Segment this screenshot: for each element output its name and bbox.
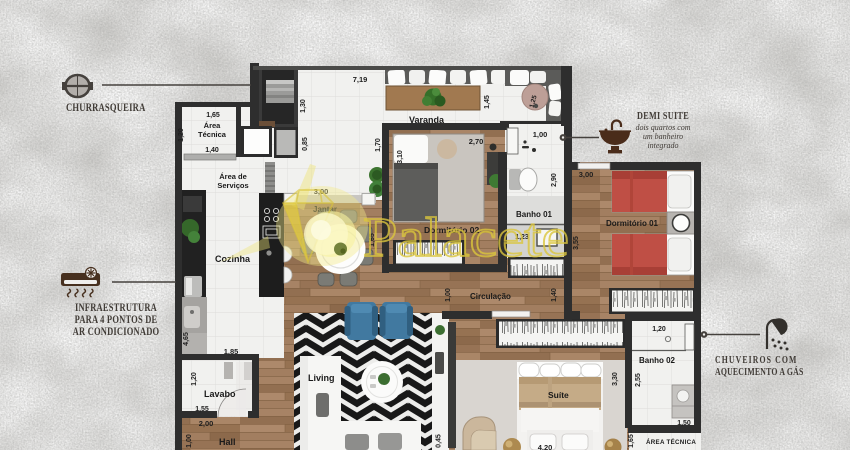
svg-text:CHURRASQUEIRA: CHURRASQUEIRA (66, 102, 146, 114)
svg-text:1,20: 1,20 (178, 128, 185, 142)
svg-text:DEMI SUITE: DEMI SUITE (637, 111, 689, 122)
svg-text:um banheiro: um banheiro (643, 132, 683, 141)
svg-text:integrado: integrado (647, 141, 678, 150)
svg-text:3,10: 3,10 (397, 150, 404, 164)
svg-text:AR CONDICIONADO: AR CONDICIONADO (73, 326, 160, 338)
svg-text:1,70: 1,70 (375, 138, 382, 152)
svg-text:4,20: 4,20 (538, 443, 553, 450)
svg-text:2,70: 2,70 (469, 137, 484, 146)
svg-text:Lavabo: Lavabo (204, 389, 236, 399)
svg-text:Banho 02: Banho 02 (639, 356, 676, 365)
svg-text:Dormitório 01: Dormitório 01 (606, 219, 659, 228)
svg-text:Varanda: Varanda (409, 115, 445, 125)
svg-text:CHUVEIROS COM: CHUVEIROS COM (715, 354, 797, 365)
svg-text:7,19: 7,19 (353, 75, 368, 84)
svg-text:2,90: 2,90 (551, 173, 558, 187)
svg-text:PARA 4 PONTOS DE: PARA 4 PONTOS DE (75, 314, 158, 326)
svg-text:0,85: 0,85 (302, 137, 309, 151)
svg-text:Living: Living (308, 373, 335, 383)
svg-text:1,85: 1,85 (224, 347, 239, 356)
svg-text:1,00: 1,00 (533, 130, 548, 139)
svg-text:3,30: 3,30 (612, 372, 619, 386)
svg-text:Circulação: Circulação (470, 292, 511, 301)
svg-text:Hall: Hall (219, 437, 236, 447)
svg-text:1,20: 1,20 (191, 372, 198, 386)
svg-text:Técnica: Técnica (198, 130, 227, 139)
svg-text:Área de: Área de (219, 172, 247, 181)
svg-text:1,40: 1,40 (205, 147, 219, 154)
svg-text:dois quartos com: dois quartos com (635, 123, 690, 132)
svg-text:0,45: 0,45 (436, 434, 443, 448)
svg-text:4,65: 4,65 (183, 332, 190, 346)
svg-text:AQUECIMENTO A GÁS: AQUECIMENTO A GÁS (715, 366, 804, 377)
svg-text:1,00: 1,00 (445, 288, 452, 302)
svg-text:1,20: 1,20 (652, 326, 666, 333)
svg-text:1,30: 1,30 (300, 99, 307, 113)
svg-text:INFRAESTRUTURA: INFRAESTRUTURA (75, 302, 158, 314)
svg-text:2,00: 2,00 (199, 419, 214, 428)
svg-text:1,65: 1,65 (628, 434, 635, 448)
svg-text:1,50: 1,50 (677, 420, 691, 427)
svg-text:Serviços: Serviços (217, 181, 248, 190)
svg-text:1,45: 1,45 (484, 95, 491, 109)
svg-text:1,00: 1,00 (186, 434, 193, 448)
svg-text:Palacete: Palacete (363, 207, 569, 269)
svg-text:1,65: 1,65 (206, 112, 220, 119)
svg-text:1,40: 1,40 (551, 288, 558, 302)
svg-text:3,00: 3,00 (579, 170, 594, 179)
svg-text:Área: Área (204, 121, 222, 130)
svg-text:ÁREA TÉCNICA: ÁREA TÉCNICA (646, 438, 696, 446)
svg-text:2,55: 2,55 (635, 373, 642, 387)
svg-text:3,55: 3,55 (573, 236, 580, 250)
svg-text:1,55: 1,55 (195, 406, 209, 413)
svg-text:Suíte: Suíte (548, 390, 569, 400)
